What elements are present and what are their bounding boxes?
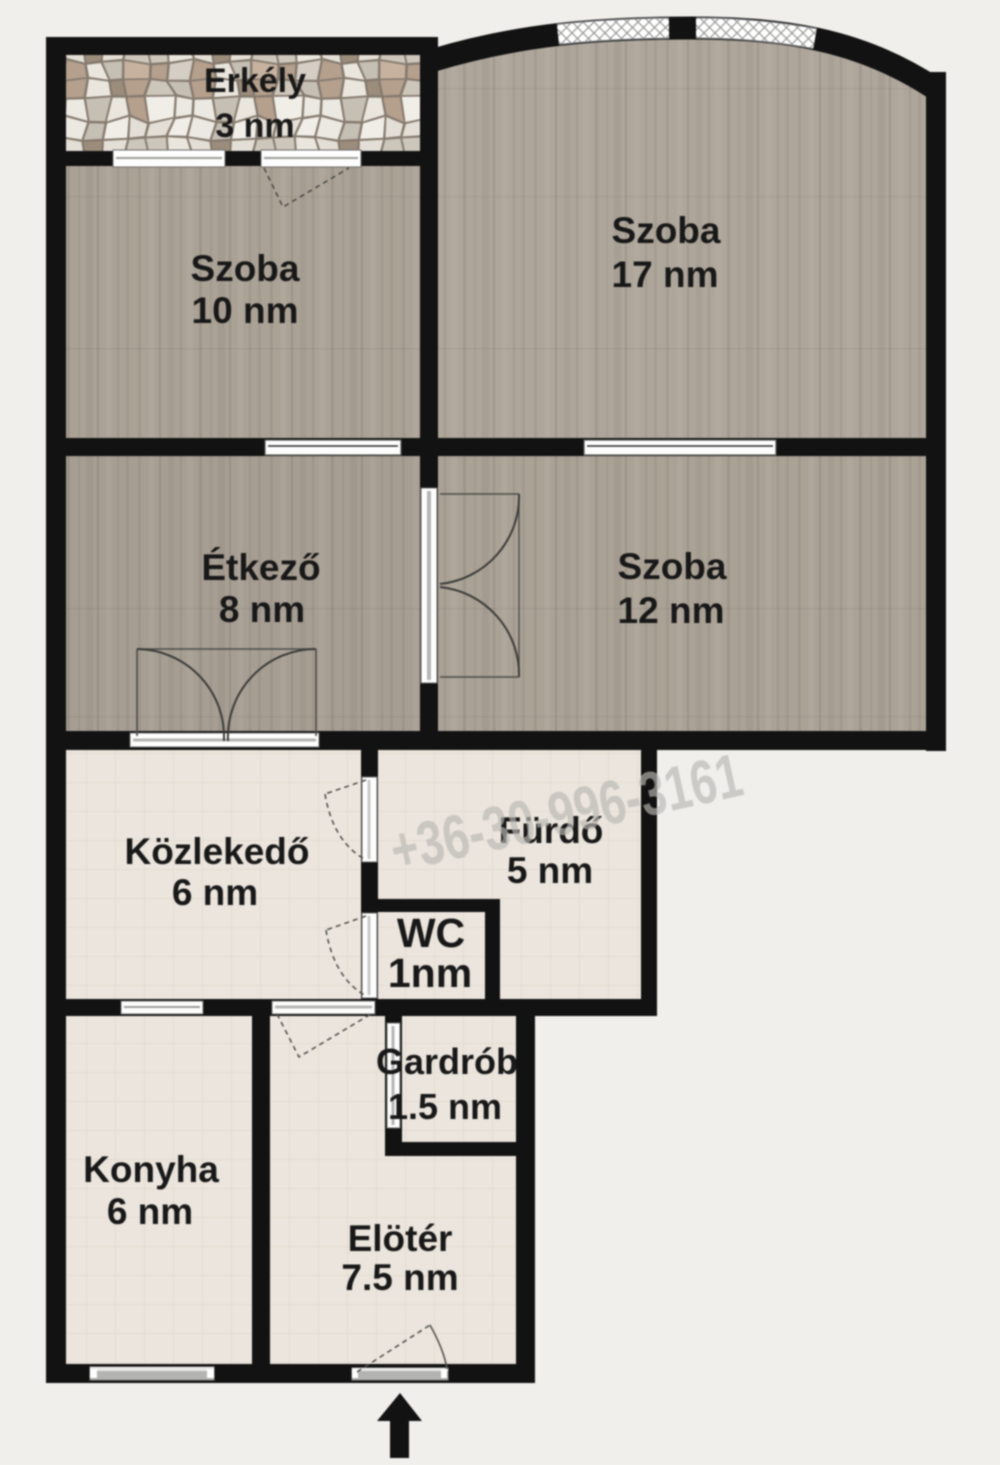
svg-text:6 nm: 6 nm (172, 872, 258, 913)
svg-text:10 nm: 10 nm (192, 290, 299, 331)
svg-text:Konyha: Konyha (83, 1149, 219, 1190)
svg-text:Közlekedő: Közlekedő (124, 831, 309, 872)
svg-text:Szoba: Szoba (612, 210, 721, 251)
svg-text:1nm: 1nm (388, 950, 472, 996)
svg-text:3 nm: 3 nm (215, 107, 294, 145)
svg-text:8 nm: 8 nm (219, 589, 305, 630)
svg-text:17 nm: 17 nm (612, 254, 719, 295)
svg-text:Gardrób: Gardrób (376, 1041, 518, 1082)
svg-text:Erkély: Erkély (204, 62, 306, 100)
svg-text:1.5 nm: 1.5 nm (388, 1086, 502, 1127)
svg-text:6 nm: 6 nm (107, 1191, 193, 1232)
svg-text:12 nm: 12 nm (618, 590, 725, 631)
svg-text:Elötér: Elötér (348, 1218, 453, 1259)
svg-text:Étkező: Étkező (201, 547, 320, 588)
svg-text:7.5 nm: 7.5 nm (341, 1257, 458, 1298)
svg-text:Szoba: Szoba (618, 546, 727, 587)
svg-text:Szoba: Szoba (191, 248, 300, 289)
